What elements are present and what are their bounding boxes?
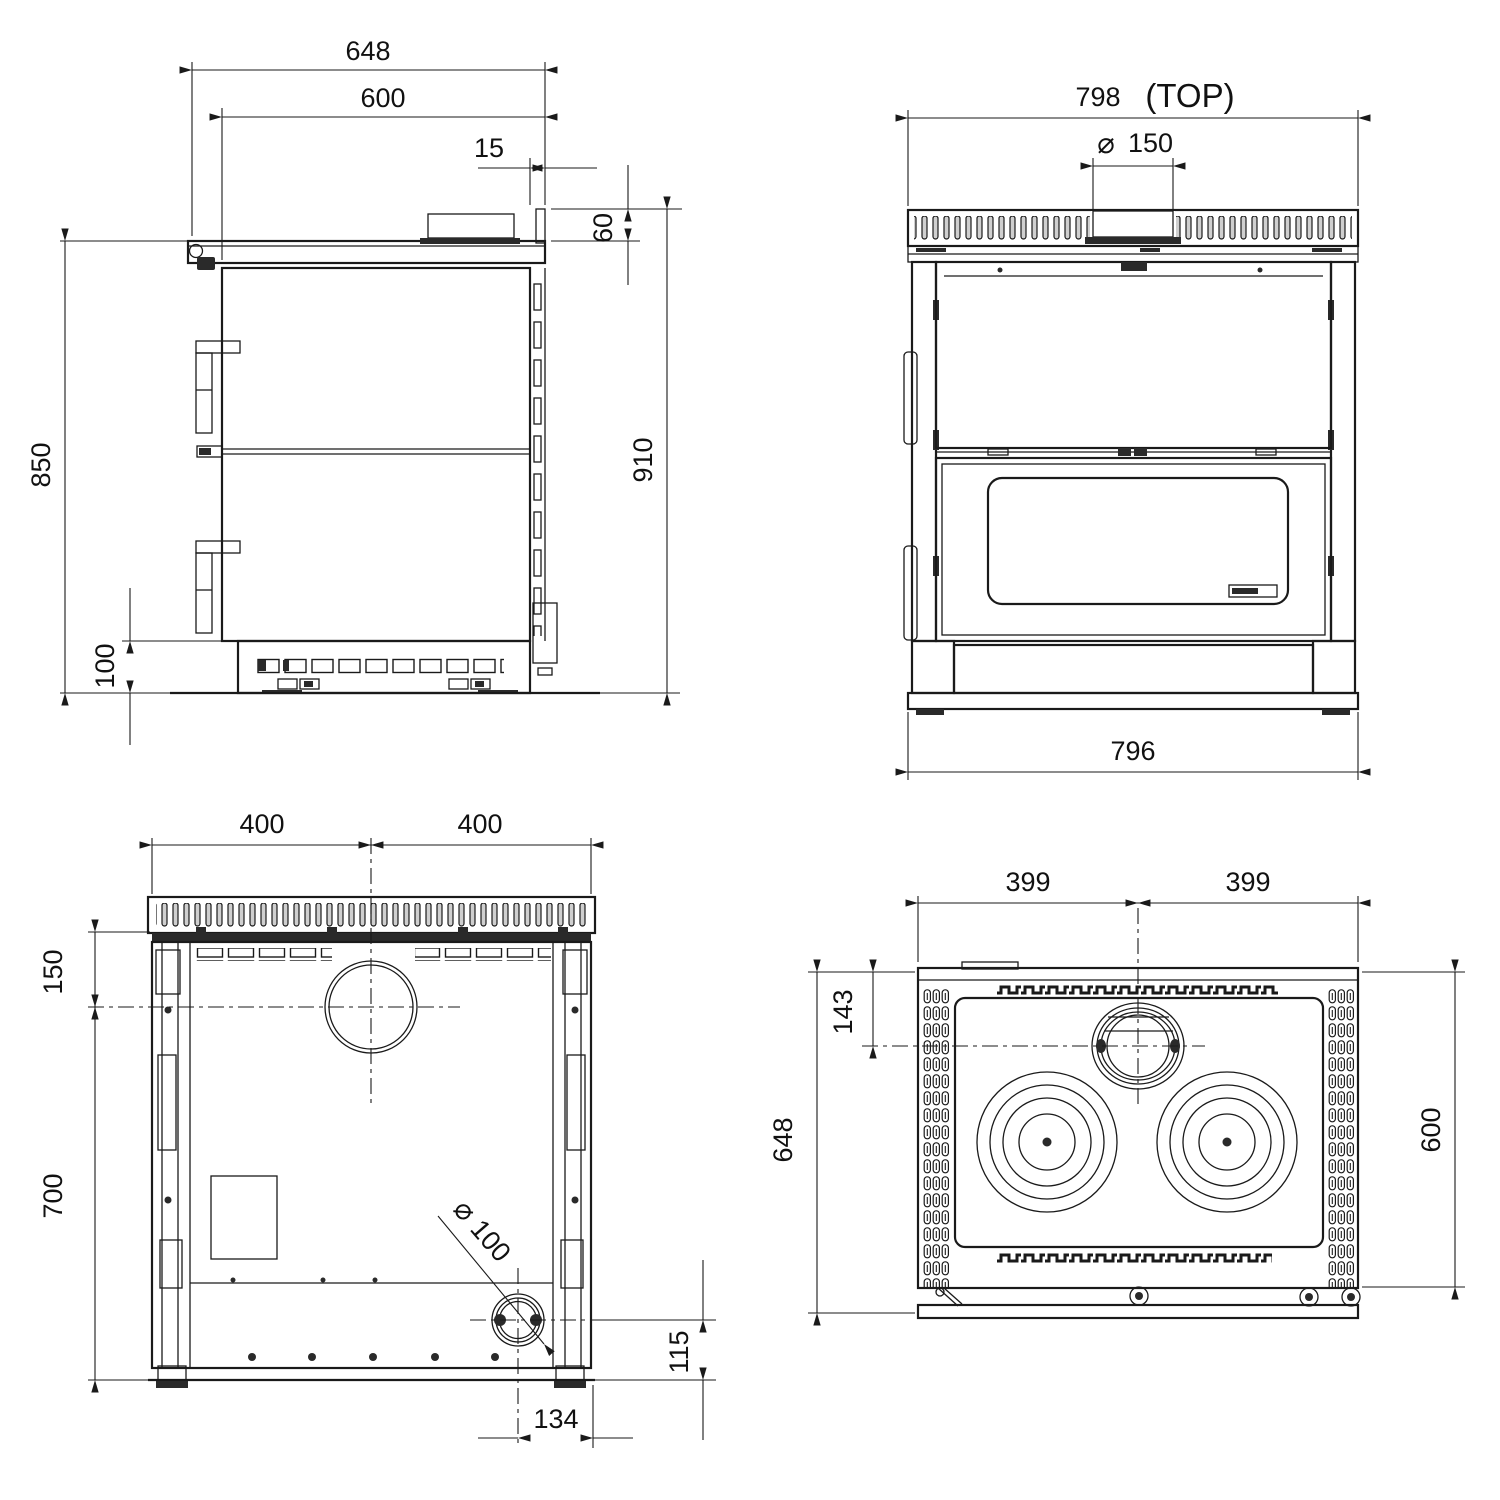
- dim-label-399-left: 399: [1005, 867, 1050, 897]
- dim-front-flue-diameter: ⌀ 150: [1093, 128, 1173, 210]
- front-base-plate: [908, 693, 1358, 709]
- dim-side-height-overall: 910: [600, 209, 680, 693]
- dim-label-143: 143: [828, 989, 858, 1034]
- hotplate-right: [1157, 1072, 1297, 1212]
- dim-label-100-rear: 100: [465, 1214, 517, 1268]
- top-vent-strip-right: [1328, 988, 1355, 1287]
- dim-label-850: 850: [26, 442, 56, 487]
- dim-label-60: 60: [588, 213, 618, 243]
- rating-plate: [211, 1176, 277, 1259]
- dim-label-796: 796: [1110, 736, 1155, 766]
- rear-fixing-holes: [248, 1353, 499, 1361]
- dim-label-400-left: 400: [239, 809, 284, 839]
- dim-side-plinth-height: 100: [90, 588, 240, 745]
- top-flue-collar: [862, 908, 1205, 1106]
- front-top-grille: [908, 210, 1358, 246]
- side-view: 648 600 15 60 850 910: [26, 36, 682, 745]
- dim-label-648-side: 648: [345, 36, 390, 66]
- dim-label-100-side: 100: [90, 643, 120, 688]
- dim-side-top-thickness: 60: [551, 165, 682, 285]
- side-flue-collar: [420, 214, 520, 244]
- dim-label-15: 15: [474, 133, 504, 163]
- dim-label-134: 134: [533, 1404, 578, 1434]
- dim-label-399-right: 399: [1225, 867, 1270, 897]
- side-body-panel: [197, 268, 530, 641]
- rear-vent-slots-right: [415, 948, 551, 961]
- dim-top-depth-cooktop: 600: [1362, 972, 1465, 1287]
- side-rear-heat-shield: [530, 268, 545, 641]
- stove-dimension-drawing-page: 648 600 15 60 850 910: [0, 0, 1500, 1500]
- plinth-vents: [256, 658, 504, 674]
- rear-base: [148, 1366, 595, 1388]
- oven-door: [936, 458, 1331, 641]
- dim-label-700: 700: [38, 1173, 68, 1218]
- front-divider: [936, 448, 1331, 456]
- dim-side-rear-lip: 15: [474, 133, 597, 205]
- rear-upstand: [536, 209, 545, 243]
- top-tag-label: (TOP): [1145, 77, 1234, 114]
- front-hinges: [933, 300, 1334, 576]
- top-view: 399 399 143 648 600: [768, 867, 1465, 1318]
- side-worktop: [188, 209, 545, 263]
- dim-label-798: 798: [1075, 82, 1120, 112]
- side-plinth: [238, 641, 530, 694]
- dim-rear-flue-offset: 150: [38, 932, 150, 1007]
- dim-top-flue-offset: 143: [808, 972, 915, 1046]
- hotplate-left: [977, 1072, 1117, 1212]
- cooktop-plate: [955, 998, 1323, 1247]
- lower-door-handle: [196, 541, 240, 633]
- front-left-column: [912, 262, 936, 641]
- dim-rear-outlet-offset: 134: [478, 1385, 633, 1448]
- front-view: 798 (TOP) ⌀ 150 796: [904, 77, 1358, 780]
- upper-door-handle: [196, 341, 240, 433]
- rear-flue-hole: [88, 838, 460, 1108]
- dim-rear-outlet-callout: ⌀ 100: [438, 1194, 544, 1344]
- top-vent-strip-left: [923, 988, 950, 1287]
- dim-label-648-top: 648: [768, 1117, 798, 1162]
- dim-label-400-right: 400: [457, 809, 502, 839]
- dim-label-115: 115: [664, 1330, 694, 1373]
- dim-label-600-side: 600: [360, 83, 405, 113]
- dim-label-600-top: 600: [1416, 1107, 1446, 1152]
- dim-rear-flue-to-floor: 700: [38, 1007, 148, 1380]
- dim-side-depth-body: 600: [222, 83, 545, 260]
- dim-label-150-front: 150: [1128, 128, 1173, 158]
- front-lower-handle: [904, 546, 917, 640]
- dim-front-width-base: 796: [908, 712, 1358, 780]
- stove-dimension-drawing: 648 600 15 60 850 910: [0, 0, 1500, 1500]
- dim-label-910: 910: [628, 437, 658, 482]
- top-zigzag-front: [997, 1251, 1272, 1264]
- side-damper-knob: [190, 245, 225, 271]
- dim-rear-outlet-height: 115: [595, 1260, 716, 1440]
- front-worktop-edge: [908, 246, 1358, 262]
- front-plinth: [908, 641, 1358, 715]
- front-upper-handle: [904, 352, 917, 444]
- top-base: [918, 1287, 1360, 1318]
- diameter-symbol-front: ⌀: [1097, 128, 1114, 160]
- rear-vent-slots-left: [196, 948, 332, 961]
- rear-body: [152, 942, 591, 1368]
- firebox-door: [936, 262, 1331, 448]
- dim-label-150-rear: 150: [38, 949, 68, 994]
- dim-side-height-worktop: 850: [26, 241, 188, 693]
- front-right-column: [1331, 262, 1355, 641]
- rear-view: 400 400 150 700 ⌀ 100 115: [38, 809, 716, 1448]
- top-body: [918, 968, 1358, 1288]
